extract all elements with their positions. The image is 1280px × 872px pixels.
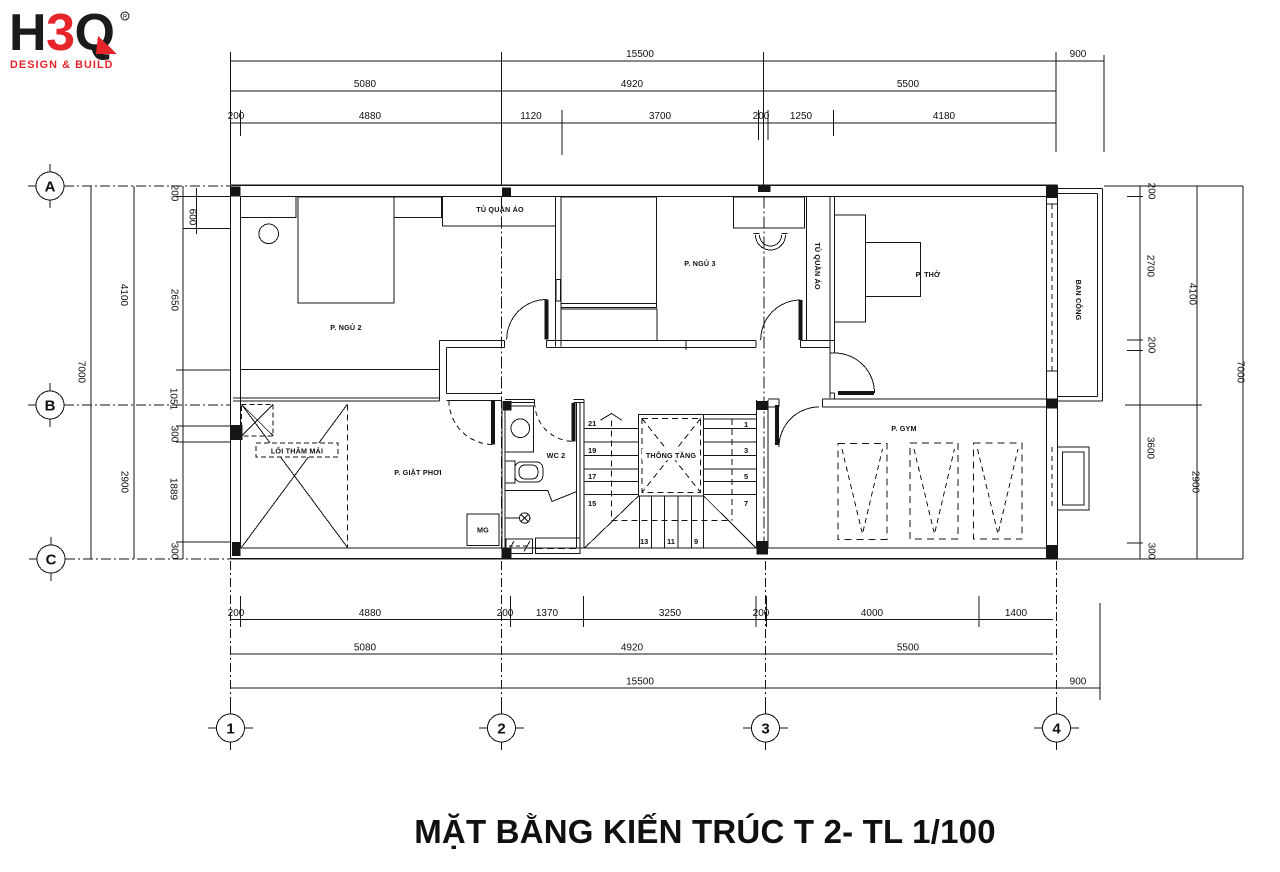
svg-text:B: B <box>45 398 56 415</box>
svg-text:DESIGN & BUILD: DESIGN & BUILD <box>10 59 114 71</box>
svg-text:1: 1 <box>744 420 748 429</box>
svg-text:900: 900 <box>1070 49 1087 60</box>
svg-text:200: 200 <box>169 185 180 202</box>
svg-text:1120: 1120 <box>520 111 542 122</box>
svg-text:4100: 4100 <box>1187 283 1198 306</box>
svg-text:4920: 4920 <box>621 643 644 654</box>
svg-text:A: A <box>45 179 56 196</box>
svg-text:1051: 1051 <box>168 388 179 411</box>
svg-text:P. NGỦ 3: P. NGỦ 3 <box>684 259 715 268</box>
svg-text:200: 200 <box>753 111 770 122</box>
svg-text:3600: 3600 <box>1145 437 1156 460</box>
svg-text:200: 200 <box>497 608 514 619</box>
svg-text:21: 21 <box>588 419 596 428</box>
svg-text:17: 17 <box>588 472 596 481</box>
svg-text:200: 200 <box>753 608 770 619</box>
svg-text:4000: 4000 <box>861 608 884 619</box>
svg-text:1889: 1889 <box>168 478 179 501</box>
svg-text:19: 19 <box>588 446 596 455</box>
svg-text:200: 200 <box>1146 183 1157 200</box>
svg-text:15500: 15500 <box>626 49 654 60</box>
svg-text:11: 11 <box>667 537 675 546</box>
svg-text:13: 13 <box>640 537 648 546</box>
svg-text:P. THỜ: P. THỜ <box>916 270 941 279</box>
svg-text:TỦ QUẦN ÁO: TỦ QUẦN ÁO <box>813 242 823 290</box>
svg-text:4920: 4920 <box>621 79 644 90</box>
svg-text:2: 2 <box>497 721 505 738</box>
svg-text:LỐI THĂM MÁI: LỐI THĂM MÁI <box>271 446 323 456</box>
svg-text:1: 1 <box>226 721 234 738</box>
svg-text:300: 300 <box>169 426 180 443</box>
svg-text:2650: 2650 <box>169 289 180 312</box>
svg-text:5080: 5080 <box>354 643 377 654</box>
svg-text:1400: 1400 <box>1005 608 1028 619</box>
svg-text:MẶT BẰNG KIẾN TRÚC T 2- TL 1/1: MẶT BẰNG KIẾN TRÚC T 2- TL 1/100 <box>414 813 996 850</box>
svg-text:C: C <box>46 552 57 569</box>
svg-text:2900: 2900 <box>1190 471 1201 494</box>
svg-text:3: 3 <box>744 446 748 455</box>
svg-text:3700: 3700 <box>649 111 672 122</box>
svg-text:5: 5 <box>744 472 748 481</box>
svg-text:15: 15 <box>588 499 596 508</box>
svg-text:4180: 4180 <box>933 111 956 122</box>
svg-text:9: 9 <box>694 537 698 546</box>
svg-text:300: 300 <box>169 543 180 560</box>
svg-text:THÔNG TẦNG: THÔNG TẦNG <box>646 450 697 460</box>
svg-text:5500: 5500 <box>897 643 920 654</box>
svg-text:WC 2: WC 2 <box>547 451 566 460</box>
svg-text:5080: 5080 <box>354 79 377 90</box>
svg-text:2900: 2900 <box>119 471 130 494</box>
svg-text:4: 4 <box>1052 721 1061 738</box>
svg-text:7000: 7000 <box>1235 361 1246 384</box>
svg-text:4100: 4100 <box>118 284 129 307</box>
svg-text:1250: 1250 <box>790 111 813 122</box>
svg-text:1370: 1370 <box>536 608 559 619</box>
svg-text:4880: 4880 <box>359 111 382 122</box>
svg-text:2700: 2700 <box>1145 255 1156 278</box>
svg-text:P. NGỦ 2: P. NGỦ 2 <box>330 323 361 332</box>
svg-text:7: 7 <box>744 499 748 508</box>
svg-text:5500: 5500 <box>897 79 920 90</box>
svg-text:TỦ QUẦN ÁO: TỦ QUẦN ÁO <box>476 204 524 214</box>
svg-text:3: 3 <box>761 721 769 738</box>
svg-text:4880: 4880 <box>359 608 382 619</box>
svg-text:600: 600 <box>187 209 198 226</box>
svg-text:900: 900 <box>1070 677 1087 688</box>
svg-text:P. GIẶT PHƠI: P. GIẶT PHƠI <box>394 468 442 477</box>
svg-text:7000: 7000 <box>76 361 87 384</box>
svg-text:BAN CÔNG: BAN CÔNG <box>1074 280 1083 321</box>
svg-text:200: 200 <box>1146 337 1157 354</box>
svg-text:15500: 15500 <box>626 677 654 688</box>
svg-text:P. GYM: P. GYM <box>891 424 916 433</box>
svg-text:3250: 3250 <box>659 608 682 619</box>
svg-text:R: R <box>123 15 128 21</box>
svg-text:300: 300 <box>1146 543 1157 560</box>
svg-text:MG: MG <box>477 526 489 535</box>
